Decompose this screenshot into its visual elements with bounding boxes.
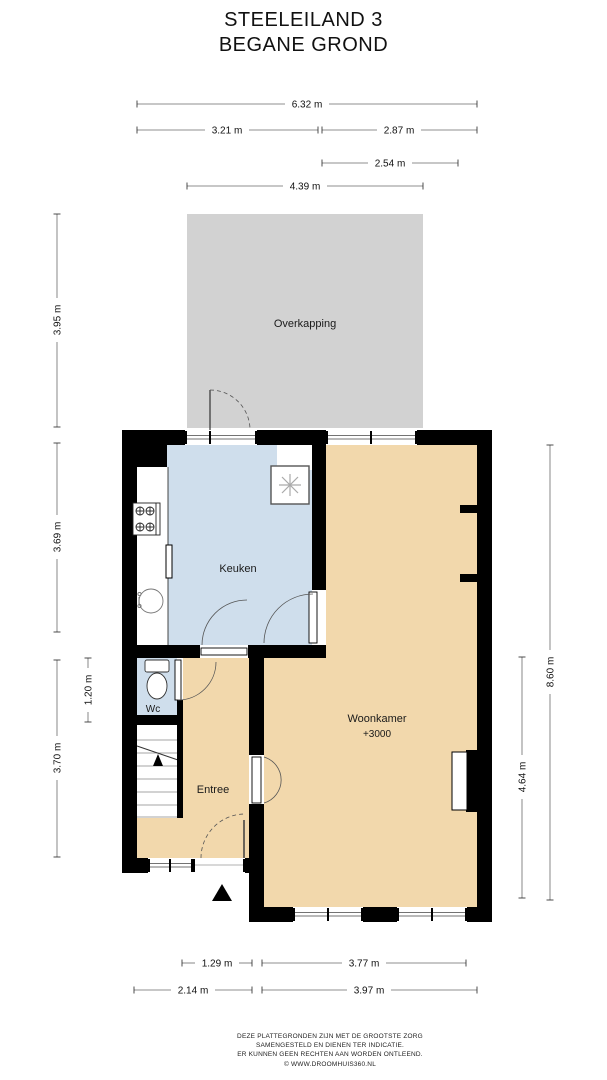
- stairs-side-wall: [177, 700, 183, 818]
- dimension-label: 6.32 m: [292, 100, 323, 111]
- entrance-triangle-icon: [212, 884, 232, 901]
- kitchen-counter: [137, 467, 168, 645]
- keuken-label: Keuken: [219, 563, 256, 575]
- entree-label: Entree: [197, 784, 229, 796]
- keuken-woonkamer-wall: [312, 445, 326, 590]
- dimension-label: 3.21 m: [212, 126, 243, 137]
- window-woonkamer-top: [326, 430, 417, 445]
- disclaimer-line2: SAMENGESTELD EN DIENEN TER INDICATIE.: [130, 1041, 530, 1050]
- entree-floor-under-stairs: [137, 818, 183, 858]
- plan-title-line2: BEGANE GROND: [0, 33, 607, 58]
- window-woonkamer-bottom-left: [293, 907, 363, 922]
- ventilation-fan-icon: [271, 466, 309, 504]
- overkapping-label: Overkapping: [274, 318, 336, 330]
- right-wall-stub-upper: [460, 505, 477, 513]
- floorplan-page: STEELEILAND 3 BEGANE GROND: [0, 0, 607, 1080]
- woonkamer-floor-upper: [326, 445, 477, 658]
- plan-title-line1: STEELEILAND 3: [0, 8, 607, 33]
- disclaimer: DEZE PLATTEGRONDEN ZIJN MET DE GROOTSTE …: [130, 1032, 530, 1069]
- dimension-label: 3.95 m: [53, 305, 64, 336]
- window-woonkamer-bottom-right: [397, 907, 467, 922]
- dimension-label: 2.54 m: [375, 159, 406, 170]
- dimension-label: 3.69 m: [53, 522, 64, 553]
- toilet-icon: [145, 660, 169, 699]
- wc-label: Wc: [146, 704, 160, 715]
- entree-woonkamer-wall-upper: [249, 658, 264, 755]
- counter-niche-marker: [166, 545, 172, 578]
- dimension-label: 4.39 m: [290, 182, 321, 193]
- floor-plan-drawing: Overkapping Keuken Wc Entree Woonkamer +…: [0, 0, 607, 1080]
- right-outer-wall: [477, 430, 492, 922]
- dimension-label: 3.97 m: [354, 986, 385, 997]
- dimension-label: 4.64 m: [518, 762, 529, 793]
- radiator: [452, 752, 467, 810]
- radiator-wall-bump: [466, 750, 477, 812]
- dimension-label: 1.20 m: [84, 675, 95, 706]
- disclaimer-line4: © WWW.DROOMHUIS360.NL: [130, 1060, 530, 1069]
- disclaimer-line3: ER KUNNEN GEEN RECHTEN AAN WORDEN ONTLEE…: [130, 1050, 530, 1059]
- woonkamer-level-note: +3000: [363, 729, 392, 740]
- dimension-label: 2.87 m: [384, 126, 415, 137]
- dimension-label: 1.29 m: [202, 959, 233, 970]
- right-wall-stub-lower: [460, 574, 477, 582]
- woonkamer-floor-lower: [264, 658, 477, 907]
- window-entree-bottom: [148, 858, 193, 873]
- dimension-label: 2.14 m: [178, 986, 209, 997]
- woonkamer-label: Woonkamer: [347, 713, 406, 725]
- dimension-label: 3.77 m: [349, 959, 380, 970]
- disclaimer-line1: DEZE PLATTEGRONDEN ZIJN MET DE GROOTSTE …: [130, 1032, 530, 1041]
- wc-stairs-divider: [137, 715, 183, 725]
- entree-floor: [183, 658, 249, 858]
- window-keuken-top: [185, 430, 257, 445]
- dimension-label: 3.70 m: [53, 743, 64, 774]
- dimension-label: 8.60 m: [546, 657, 557, 688]
- stove-icon: [133, 503, 160, 535]
- plan-title: STEELEILAND 3 BEGANE GROND: [0, 8, 607, 58]
- stairs-area: [137, 725, 178, 818]
